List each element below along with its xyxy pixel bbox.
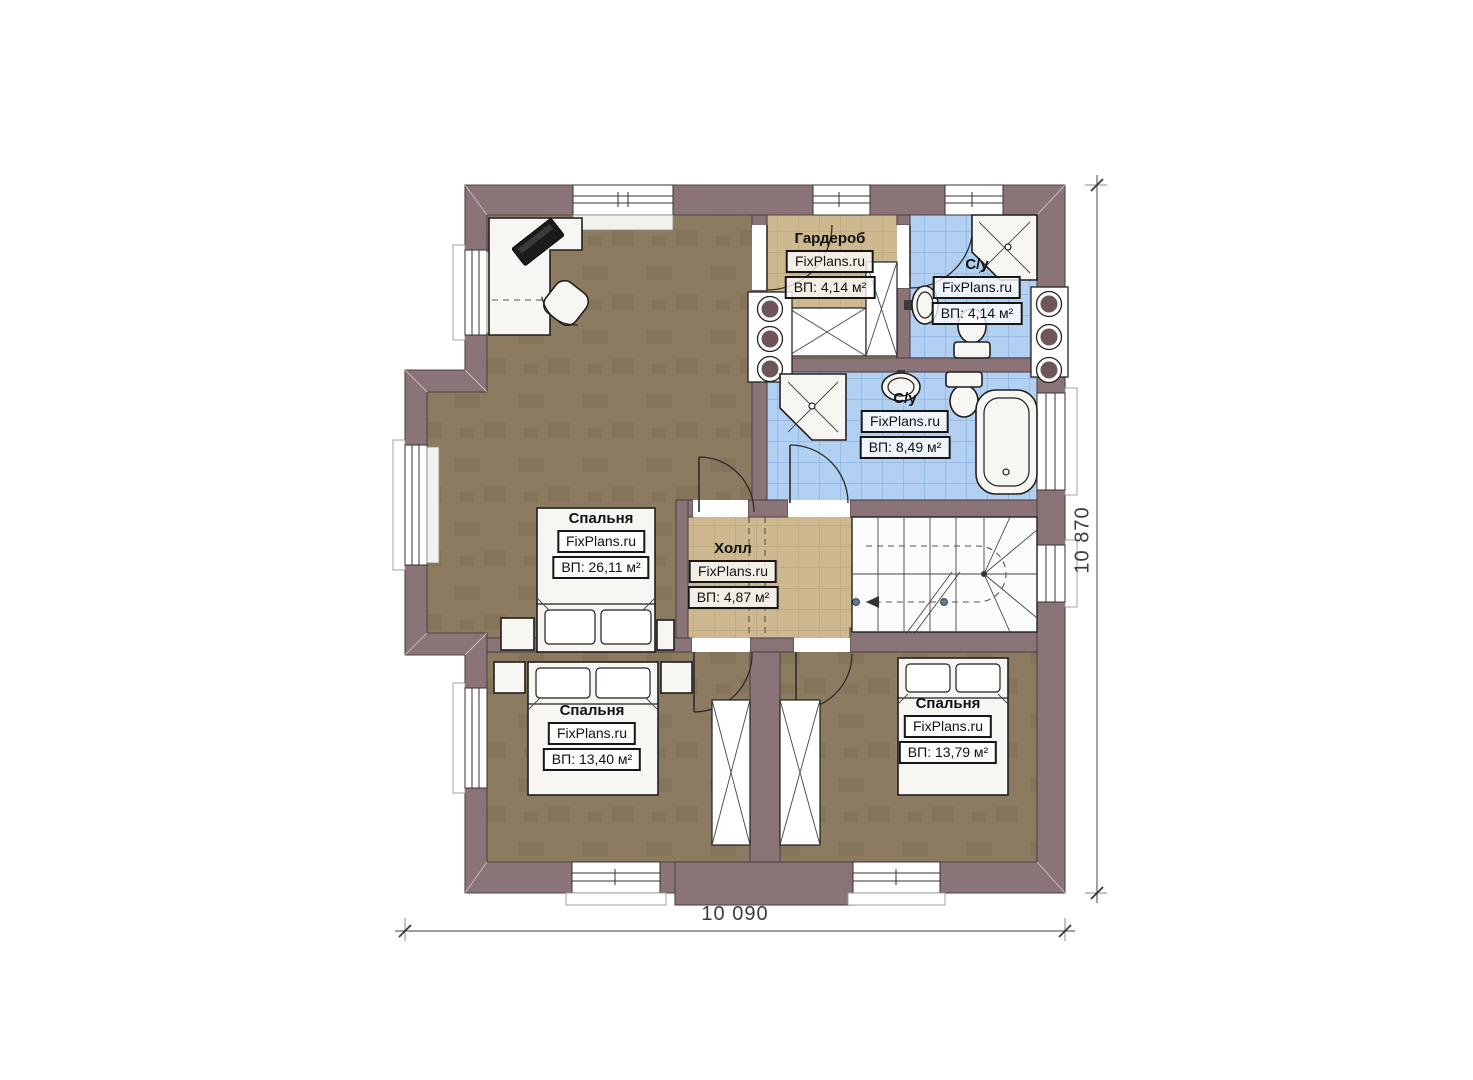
room-watermark: FixPlans.ru xyxy=(861,410,949,433)
room-area: ВП: 4,14 м² xyxy=(785,276,876,299)
room-name: Спальня xyxy=(916,695,981,712)
wall-w5 xyxy=(676,500,688,638)
room-area: ВП: 4,87 м² xyxy=(688,586,779,609)
room-watermark: FixPlans.ru xyxy=(548,722,636,745)
window xyxy=(1037,388,1077,495)
window xyxy=(573,185,673,230)
flue-stack-icon xyxy=(748,292,792,382)
room-name: С/у xyxy=(893,390,916,407)
room-label-bathroom-top: С/у FixPlans.ru ВП: 4,14 м² xyxy=(932,256,1023,325)
wall-w4c xyxy=(850,500,1037,517)
wall-center xyxy=(750,652,780,862)
window xyxy=(848,862,945,905)
room-name: Спальня xyxy=(560,702,625,719)
nightstand-icon xyxy=(657,620,674,650)
window xyxy=(453,683,487,793)
room-area: ВП: 26,11 м² xyxy=(552,556,649,579)
room-label-wardrobe: Гардероб FixPlans.ru ВП: 4,14 м² xyxy=(785,230,876,299)
window xyxy=(813,185,870,215)
closet-icon xyxy=(712,700,750,845)
room-area: ВП: 13,79 м² xyxy=(899,741,997,764)
flue-stack-icon xyxy=(1031,287,1068,383)
nightstand-icon xyxy=(501,618,534,650)
wall-bottom-thick xyxy=(675,862,855,905)
room-area: ВП: 8,49 м² xyxy=(860,436,951,459)
room-area: ВП: 13,40 м² xyxy=(543,748,641,771)
shower-icon xyxy=(780,374,846,440)
room-name: Холл xyxy=(714,540,752,557)
bathtub-icon xyxy=(976,390,1037,494)
room-label-bathroom-main: С/у FixPlans.ru ВП: 8,49 м² xyxy=(860,390,951,459)
closet-icon xyxy=(788,308,866,356)
room-label-bedroom-master: Спальня FixPlans.ru ВП: 26,11 м² xyxy=(552,510,649,579)
room-watermark: FixPlans.ru xyxy=(933,276,1021,299)
room-label-bedroom-left: Спальня FixPlans.ru ВП: 13,40 м² xyxy=(543,702,641,771)
room-name: Спальня xyxy=(569,510,634,527)
wall-w2 xyxy=(897,288,910,358)
staircase xyxy=(852,517,1037,634)
room-area: ВП: 4,14 м² xyxy=(932,302,1023,325)
room-watermark: FixPlans.ru xyxy=(689,560,777,583)
wall-w3 xyxy=(752,358,1037,372)
window xyxy=(566,862,666,905)
wall-w2-stub xyxy=(897,215,910,225)
closet-icon xyxy=(780,700,820,845)
room-label-bedroom-right: Спальня FixPlans.ru ВП: 13,79 м² xyxy=(899,695,997,764)
room-name: Гардероб xyxy=(795,230,866,247)
room-watermark: FixPlans.ru xyxy=(557,530,645,553)
window xyxy=(393,440,439,570)
wall-w6b xyxy=(750,638,794,652)
dimension-width-label: 10 090 xyxy=(701,903,768,926)
window xyxy=(945,185,1003,215)
floor-plan: Спальня FixPlans.ru ВП: 26,11 м² Гардеро… xyxy=(0,0,1473,1080)
room-name: С/у xyxy=(965,256,988,273)
nightstand-icon xyxy=(661,662,692,693)
room-watermark: FixPlans.ru xyxy=(904,715,992,738)
dimension-height-label: 10 870 xyxy=(1072,506,1095,573)
nightstand-icon xyxy=(494,662,525,693)
room-watermark: FixPlans.ru xyxy=(786,250,874,273)
room-label-hall: Холл FixPlans.ru ВП: 4,87 м² xyxy=(688,540,779,609)
